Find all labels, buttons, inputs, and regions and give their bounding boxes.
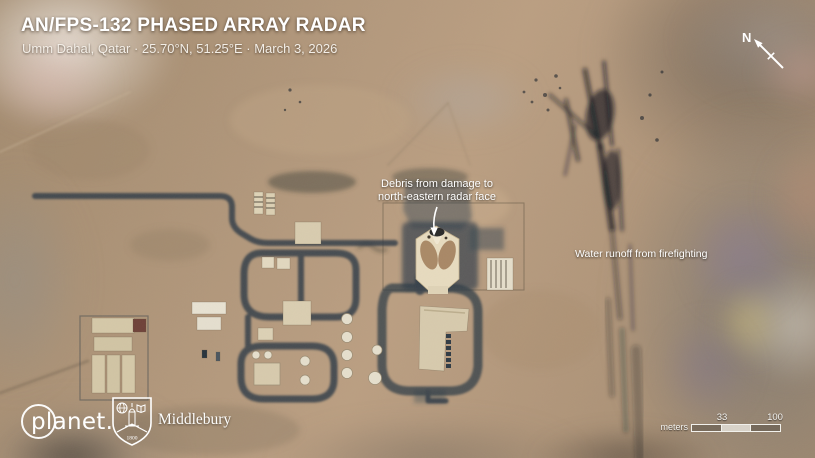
annotated-satellite-image: AN/FPS-132 PHASED ARRAY RADAR Umm Dahal,… (0, 0, 815, 458)
scale-bar-mid-tick: 33 (712, 412, 732, 423)
middlebury-wordmark: Middlebury (158, 411, 231, 429)
satellite-ground-scene (0, 0, 815, 458)
north-arrow-icon: N (728, 20, 790, 78)
annotation-water-runoff: Water runoff from firefighting (575, 248, 707, 261)
annotation-debris-line1: Debris from damage to (378, 178, 496, 191)
middlebury-shield-year: 1800 (127, 436, 138, 442)
scale-bar-segment (751, 425, 780, 431)
scale-bar-segment (692, 425, 721, 431)
middlebury-shield-icon: 1800 (110, 396, 154, 448)
annotation-debris-line2: north-eastern radar face (378, 191, 496, 204)
scale-bar-track (691, 424, 781, 432)
scale-bar: meters 33 100 (654, 412, 788, 436)
planet-wordmark: planet. (31, 409, 113, 435)
scale-bar-segment (721, 425, 750, 431)
scale-bar-unit-label: meters (654, 422, 688, 432)
debris-leader-arrow-icon (425, 205, 449, 239)
annotation-debris: Debris from damage to north-eastern rada… (378, 178, 496, 204)
page-title: AN/FPS-132 PHASED ARRAY RADAR (21, 15, 366, 37)
image-grain-overlay (0, 0, 815, 458)
location-date-subtitle: Umm Dahal, Qatar · 25.70°N, 51.25°E · Ma… (22, 41, 337, 56)
scale-bar-end-tick: 100 (764, 412, 786, 423)
north-label: N (742, 30, 751, 45)
